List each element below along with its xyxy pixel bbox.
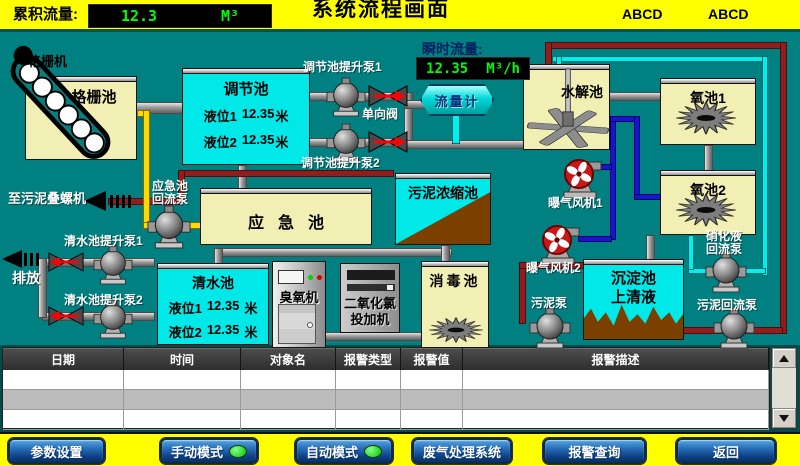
regulation-pump-2-label: 调节池提升泵2: [301, 157, 380, 170]
pipe-air: [634, 194, 662, 200]
col-object: 对象名: [241, 348, 336, 370]
fan-aeration-1[interactable]: [558, 156, 602, 200]
scroll-up-button[interactable]: [772, 348, 796, 368]
table-row[interactable]: [3, 410, 769, 430]
alarm-panel: 日期 时间 对象名 报警类型 报警值 报警描述: [0, 345, 800, 432]
valve-discharge-2[interactable]: [48, 306, 84, 326]
hatch-mark: [30, 253, 33, 266]
footer: 参数设置 手动模式 自动模式 废气处理系统 报警查询 返回: [0, 432, 800, 466]
green-indicator: [308, 275, 313, 280]
ozone-display: [278, 270, 304, 284]
col-value: 报警值: [401, 348, 463, 370]
tank-oxygen-pool-1: 氧池1: [660, 78, 756, 145]
pipe-sludge: [780, 42, 787, 334]
pipe: [214, 248, 452, 257]
manual-mode-button[interactable]: 手动模式: [160, 438, 258, 464]
pipe-air: [634, 116, 640, 200]
hmi-screen: 累积流量: 12.3 M³ 系统流程画面 ABCD ABCD: [0, 0, 800, 466]
ozone-knob: [307, 322, 313, 328]
params-button[interactable]: 参数设置: [8, 438, 105, 464]
tank-disinfection-pool: 消毒池: [421, 261, 489, 348]
red-indicator: [317, 275, 322, 280]
page-title: 系统流程画面: [312, 3, 450, 16]
pipe-recycle: [744, 268, 766, 274]
pipe-sludge: [519, 262, 526, 324]
cumulative-flow-value: 12.3: [121, 7, 157, 25]
hatch-mark: [128, 195, 131, 208]
grid-machine-label: 格栅机: [28, 55, 67, 68]
pipe: [704, 145, 713, 172]
header-tag-2: ABCD: [708, 8, 748, 21]
tank-emergency-pool: 应急池: [200, 188, 372, 245]
tank-hydrolysis-pool: 水解池: [523, 64, 610, 150]
pipe-flowmeter-drain: [452, 112, 460, 144]
tank-sludge-thickening-pool: 污泥浓缩池: [395, 173, 491, 245]
sludge-return-pump-label: 污泥回流泵: [697, 299, 757, 312]
instant-flow-unit: M³/h: [486, 61, 520, 77]
table-row[interactable]: [3, 370, 769, 390]
pipe-recycle: [552, 56, 768, 62]
tank-oxygen-pool-2: 氧池2: [660, 170, 756, 235]
clear-water-pump-2-label: 清水池提升泵2: [64, 294, 143, 307]
aeration-fan-1-label: 曝气风机1: [548, 197, 603, 210]
emergency-return-pump-label: 应急池 回流泵: [152, 180, 188, 206]
check-valve-1[interactable]: [368, 85, 408, 107]
flow-meter-label: 流量计: [434, 91, 479, 110]
header-tag-1: ABCD: [622, 8, 662, 21]
regulation-pump-1-label: 调节池提升泵1: [303, 61, 382, 74]
pump-emergency-return[interactable]: [148, 206, 190, 248]
table-row[interactable]: [3, 390, 769, 410]
hatch-mark: [116, 195, 119, 208]
sludge-pump-label: 污泥泵: [531, 297, 567, 310]
pump-nitrification-return[interactable]: [706, 252, 746, 292]
hatch-mark: [122, 195, 125, 208]
valve-discharge-1[interactable]: [48, 252, 84, 272]
discharge-label: 排放: [12, 272, 40, 285]
tank-label: 污泥浓缩池: [396, 183, 490, 203]
pipe: [605, 92, 662, 101]
ozone-machine-cabinet[interactable]: 臭氧机: [272, 261, 326, 348]
col-type: 报警类型: [336, 348, 401, 370]
hatch-mark: [36, 253, 39, 266]
pipe: [316, 332, 424, 341]
gear-icon: [675, 101, 737, 135]
header: 累积流量: 12.3 M³ 系统流程画面 ABCD ABCD: [0, 0, 800, 32]
tank-label: 调节池: [183, 78, 309, 99]
pump-sludge-return[interactable]: [712, 308, 756, 348]
chlorine-dioxide-doser-cabinet[interactable]: 二氧化氯 投加机: [340, 263, 400, 333]
chlorine-dioxide-doser-label: 二氧化氯 投加机: [341, 296, 399, 328]
arrow-to-sludge-screw: [84, 191, 106, 211]
hatch-mark: [110, 195, 113, 208]
to-sludge-screw-label: 至污泥叠螺机: [8, 192, 86, 205]
tank-label: 水解池: [524, 82, 603, 102]
manual-mode-led: [229, 445, 247, 458]
col-description: 报警描述: [463, 348, 769, 370]
level-row: 液位212.35米: [183, 132, 309, 151]
tank-regulation-pool: 调节池 液位112.35米 液位212.35米: [182, 68, 310, 165]
hatch-mark: [24, 253, 27, 266]
pipe-sludge: [545, 42, 787, 49]
tank-sedimentation-pool: 沉淀池 上清液: [583, 259, 684, 340]
check-valve-2[interactable]: [368, 131, 408, 153]
tank-label: 清水池: [158, 273, 268, 293]
clear-water-pump-1-label: 清水池提升泵1: [64, 235, 143, 248]
tank-label: 应急池: [201, 209, 371, 233]
pipe-recycle: [688, 235, 694, 270]
pipe: [38, 258, 47, 318]
back-button[interactable]: 返回: [676, 438, 776, 464]
auto-mode-button[interactable]: 自动模式: [295, 438, 393, 464]
gear-icon: [428, 317, 484, 343]
pump-regulation-1[interactable]: [327, 78, 365, 116]
instant-flow-display: 12.35 M³/h: [416, 57, 530, 80]
col-time: 时间: [124, 348, 241, 370]
instant-flow-value: 12.35: [426, 61, 468, 77]
alarm-query-button[interactable]: 报警查询: [543, 438, 646, 464]
col-date: 日期: [3, 348, 124, 370]
pipe-sludge: [545, 42, 552, 66]
alarm-table-header: 日期 时间 对象名 报警类型 报警值 报警描述: [3, 348, 769, 370]
nitrification-return-pump-label: 硝化液 回流泵: [706, 230, 742, 256]
flow-meter[interactable]: 流量计: [420, 84, 494, 116]
scrollbar[interactable]: [771, 347, 797, 429]
arrow-discharge: [2, 250, 22, 268]
cumulative-flow-label: 累积流量:: [13, 8, 78, 21]
pipe-air: [578, 236, 612, 242]
doser-slot-light: [387, 285, 393, 290]
doser-slot: [347, 270, 395, 280]
cumulative-flow-unit: M³: [221, 7, 239, 25]
gear-icon: [675, 193, 737, 227]
tank-label: 消毒池: [422, 271, 488, 291]
level-row: 液位112.35米: [158, 298, 268, 317]
agitator-icon: [526, 69, 610, 149]
alarm-table: 日期 时间 对象名 报警类型 报警值 报警描述: [2, 347, 770, 429]
aeration-fan-2-label: 曝气风机2: [526, 262, 581, 275]
pipe-air: [610, 116, 616, 240]
tank-label: 沉淀池 上清液: [584, 269, 683, 307]
auto-mode-led: [364, 445, 382, 458]
pipe-sludge: [178, 170, 394, 177]
tank-clear-water-pool: 清水池 液位112.35米 液位212.35米: [157, 263, 269, 345]
instant-flow-label: 瞬时流量:: [422, 43, 483, 56]
pipe-recycle: [762, 56, 768, 276]
level-row: 液位112.35米: [183, 106, 309, 125]
pump-clear-water-1[interactable]: [94, 246, 132, 284]
waste-gas-system-button[interactable]: 废气处理系统: [412, 438, 512, 464]
check-valve-label: 单向阀: [362, 108, 398, 121]
pipe: [404, 140, 530, 149]
level-row: 液位212.35米: [158, 322, 268, 341]
pump-sludge[interactable]: [530, 308, 570, 348]
scroll-down-button[interactable]: [772, 408, 796, 428]
fan-aeration-2[interactable]: [536, 222, 580, 266]
cumulative-flow-display: 12.3 M³: [88, 4, 272, 28]
grid-machine-conveyor-icon[interactable]: [2, 52, 130, 174]
